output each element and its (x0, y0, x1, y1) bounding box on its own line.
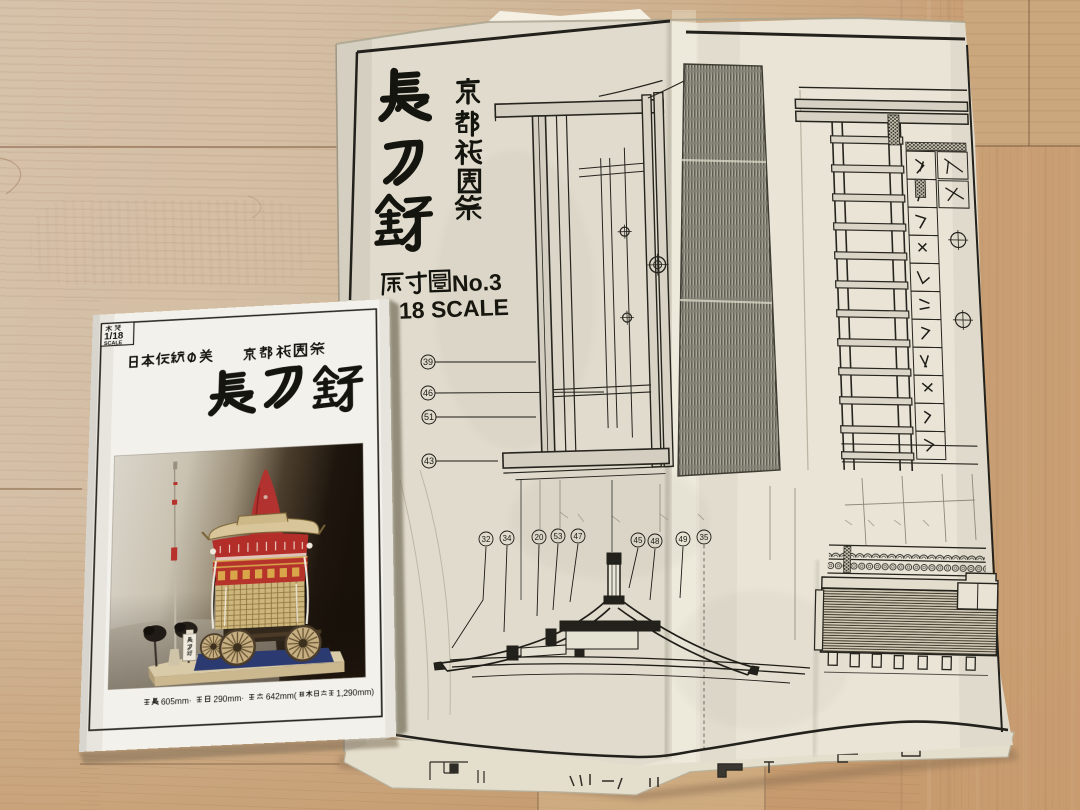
svg-text:290mm·: 290mm· (213, 693, 244, 705)
svg-text:SCALE: SCALE (104, 340, 123, 347)
svg-text:605mm·: 605mm· (161, 695, 192, 707)
svg-text:1,290mm): 1,290mm) (336, 687, 375, 699)
svg-text:642mm(: 642mm( (266, 690, 297, 702)
